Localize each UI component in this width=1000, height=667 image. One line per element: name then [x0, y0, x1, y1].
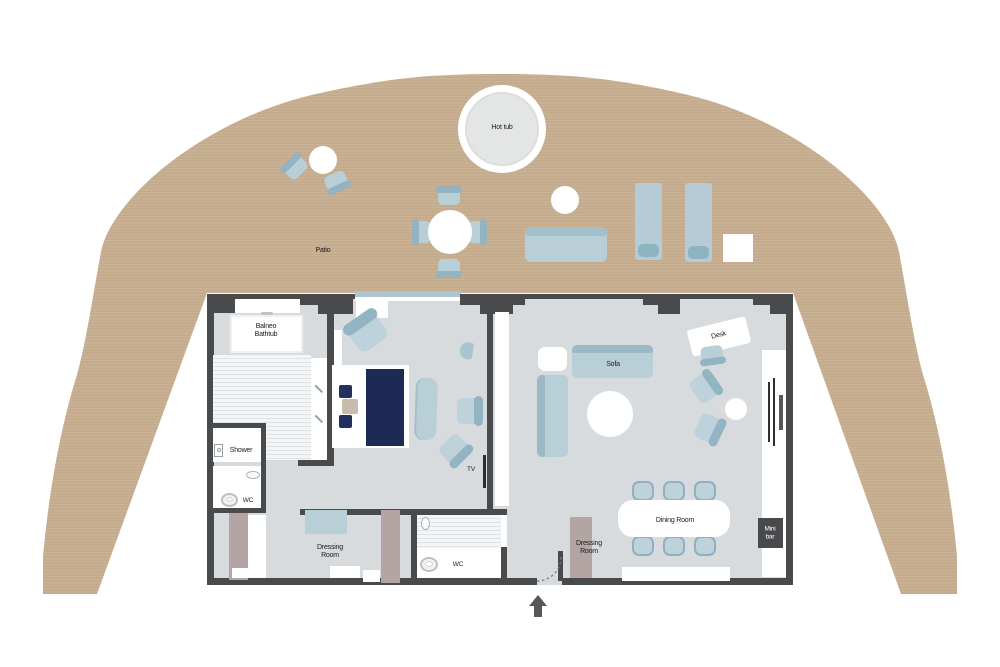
bathroom-wall	[298, 460, 334, 466]
wall-pillar	[460, 294, 525, 305]
console	[622, 567, 730, 581]
bed-duvet	[366, 369, 404, 446]
patio-bistro-table	[309, 146, 337, 174]
divider-closet	[495, 312, 509, 506]
bed-pouf	[342, 399, 358, 414]
patio-label: Patio	[316, 247, 331, 255]
wall-pillar	[643, 294, 680, 305]
bed-pillow	[339, 415, 352, 428]
floor-plan: Hot tub Patio	[0, 0, 1000, 667]
window-icon	[773, 378, 775, 446]
patio-side-table	[551, 186, 579, 214]
patio-low-table	[723, 234, 753, 262]
wall-pillar	[753, 294, 793, 305]
patio-table	[428, 210, 472, 254]
bedroom-armchair	[457, 398, 479, 424]
entrance-arrow-icon	[529, 595, 547, 606]
toilet-icon	[221, 493, 238, 507]
wc2-tile-floor	[417, 515, 502, 548]
sofa-chaise	[537, 375, 568, 457]
dining-chair	[663, 481, 685, 501]
patio-daybed	[525, 227, 607, 262]
wc2-label: WC	[453, 561, 463, 569]
toilet-icon	[420, 557, 438, 572]
dressing-entry-label: Dressing Room	[576, 540, 602, 557]
bedroom-living-wall	[487, 309, 493, 509]
window-icon	[779, 395, 783, 430]
hot-tub-label: Hot tub	[491, 124, 512, 132]
dining-room-label: Dining Room	[656, 517, 694, 525]
sun-lounger	[685, 183, 712, 262]
right-wall	[786, 294, 793, 585]
wardrobe	[381, 510, 400, 583]
dining-chair	[694, 536, 716, 556]
mini-bar-label: Mini bar	[764, 525, 775, 540]
door-swing-arc	[530, 550, 570, 586]
window-icon	[768, 382, 770, 442]
desk-chair	[700, 345, 724, 364]
bedroom-bench	[414, 378, 438, 441]
shower-label: Shower	[230, 447, 253, 455]
side-table	[538, 347, 567, 371]
sink-icon	[421, 517, 430, 530]
dining-chair	[694, 481, 716, 501]
side-table-round	[725, 398, 747, 420]
patio-chair	[438, 259, 460, 275]
dining-chair	[663, 536, 685, 556]
sink-icon	[246, 471, 260, 479]
wc2-door	[501, 515, 507, 547]
dressing-room-label: Dressing Room	[317, 544, 343, 561]
dressing-rug	[305, 510, 347, 534]
shower-head-icon	[214, 444, 223, 457]
sun-lounger	[635, 183, 662, 260]
wc1-label: WC	[243, 497, 253, 505]
coffee-table	[587, 391, 633, 437]
tv-icon	[483, 455, 486, 488]
closet	[232, 568, 262, 578]
bed-pillow	[339, 385, 352, 398]
dining-chair	[632, 481, 654, 501]
bathtub-faucet-icon	[261, 312, 273, 315]
tv-label: TV	[467, 466, 475, 474]
sofa-label: Sofa	[606, 361, 620, 369]
closet	[363, 570, 380, 582]
patio-chair	[438, 189, 460, 205]
wall-pillar	[207, 294, 235, 313]
balneo-bathtub-label: Balneo Bathtub	[255, 323, 278, 340]
desk-label: Desk	[711, 330, 728, 342]
closet	[330, 566, 360, 578]
dining-chair	[632, 536, 654, 556]
bathroom-vanity	[311, 358, 327, 460]
